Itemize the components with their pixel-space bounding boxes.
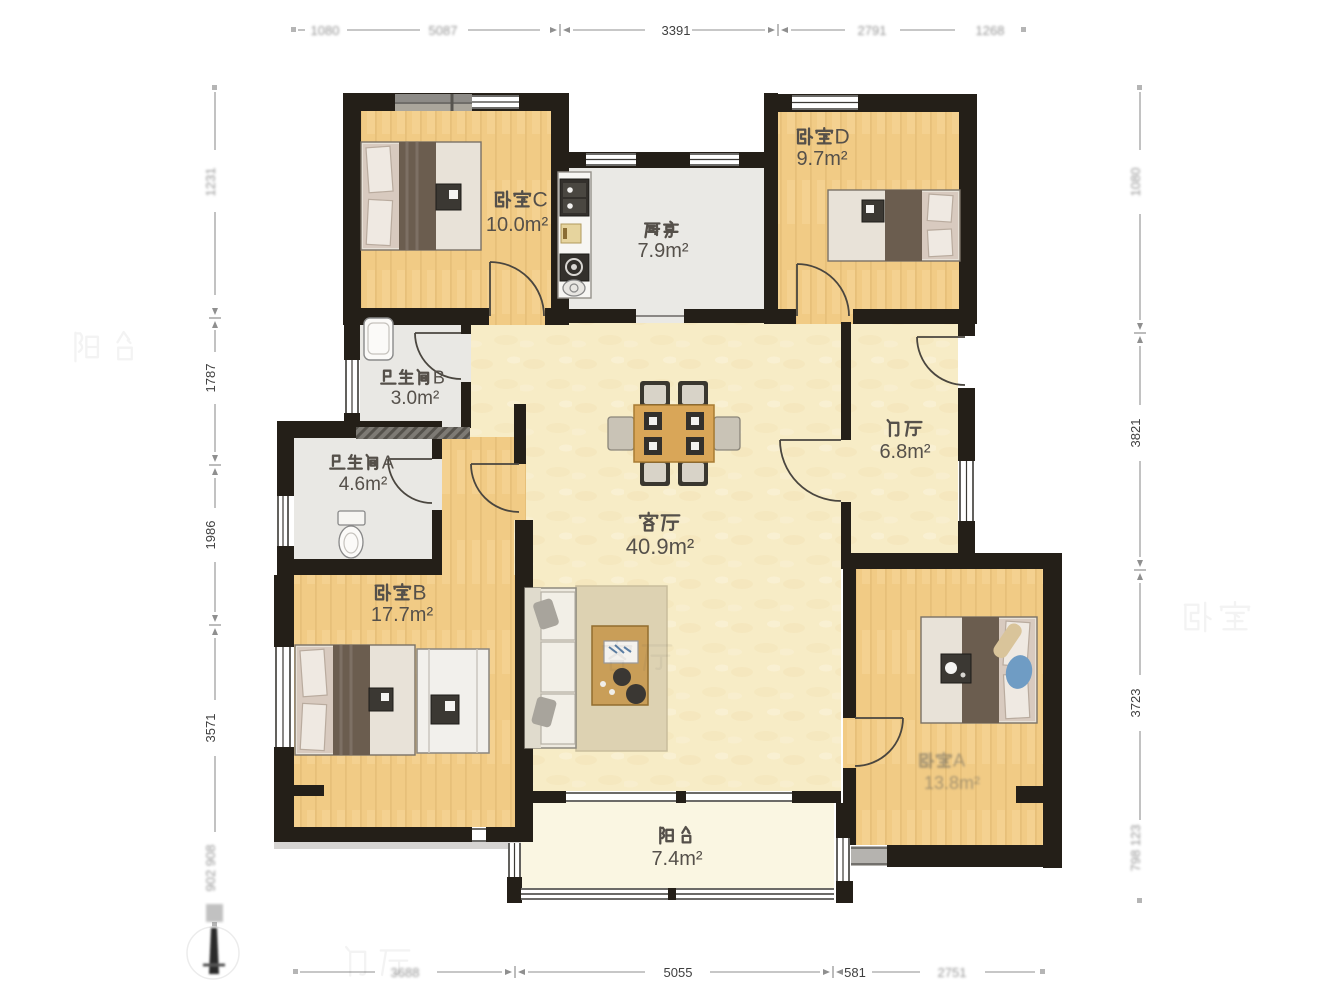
- svg-text:4.6m²: 4.6m²: [339, 474, 388, 495]
- svg-text:1080: 1080: [1128, 168, 1143, 197]
- svg-text:13.8m²: 13.8m²: [924, 773, 980, 793]
- svg-text:3571: 3571: [203, 714, 218, 743]
- svg-text:3688: 3688: [391, 965, 420, 980]
- svg-text:6.8m²: 6.8m²: [879, 441, 930, 463]
- svg-text:3.0m²: 3.0m²: [391, 388, 440, 409]
- svg-text:3391: 3391: [662, 23, 691, 38]
- svg-text:C: C: [532, 188, 547, 211]
- svg-text:A: A: [382, 453, 394, 473]
- svg-text:7.4m²: 7.4m²: [651, 848, 702, 870]
- svg-text:3821: 3821: [1128, 419, 1143, 448]
- svg-text:902 908: 902 908: [203, 845, 218, 892]
- svg-text:1080: 1080: [311, 23, 340, 38]
- svg-text:7.9m²: 7.9m²: [637, 240, 688, 262]
- svg-text:1268: 1268: [976, 23, 1005, 38]
- svg-text:1787: 1787: [203, 364, 218, 393]
- svg-text:5087: 5087: [429, 23, 458, 38]
- svg-text:1986: 1986: [203, 521, 218, 550]
- svg-text:17.7m²: 17.7m²: [371, 604, 434, 626]
- svg-text:5055: 5055: [664, 965, 693, 980]
- svg-text:B: B: [412, 581, 426, 604]
- svg-text:3723: 3723: [1128, 689, 1143, 718]
- svg-text:581: 581: [844, 965, 866, 980]
- svg-text:9.7m²: 9.7m²: [796, 148, 847, 170]
- svg-text:D: D: [834, 125, 849, 148]
- svg-text:B: B: [433, 368, 445, 388]
- svg-text:A: A: [953, 751, 965, 771]
- svg-text:40.9m²: 40.9m²: [626, 534, 694, 559]
- svg-text:1231: 1231: [203, 168, 218, 197]
- svg-text:10.0m²: 10.0m²: [486, 214, 549, 236]
- svg-text:798 123: 798 123: [1128, 825, 1143, 872]
- svg-text:2791: 2791: [858, 23, 887, 38]
- svg-text:2751: 2751: [938, 965, 967, 980]
